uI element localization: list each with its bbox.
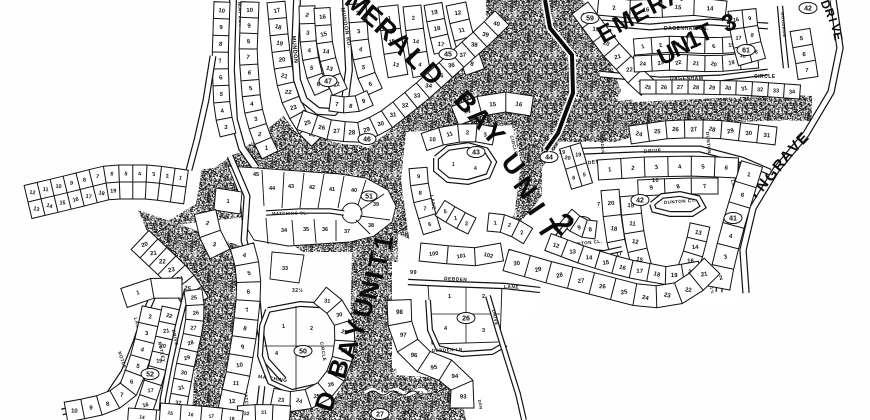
svg-text:7: 7 xyxy=(423,206,426,212)
svg-text:59: 59 xyxy=(586,15,594,22)
svg-text:1: 1 xyxy=(448,294,452,300)
svg-text:42: 42 xyxy=(636,197,644,204)
svg-text:19: 19 xyxy=(575,152,581,158)
svg-text:27: 27 xyxy=(376,411,384,418)
svg-text:41: 41 xyxy=(329,187,335,193)
svg-text:92: 92 xyxy=(424,412,431,418)
svg-text:20: 20 xyxy=(608,201,616,207)
svg-text:28: 28 xyxy=(693,85,700,92)
svg-text:1: 1 xyxy=(282,324,286,330)
svg-text:9: 9 xyxy=(417,174,420,180)
svg-text:46: 46 xyxy=(363,136,371,143)
svg-text:34: 34 xyxy=(281,228,288,234)
svg-text:MATCHING CL.: MATCHING CL. xyxy=(272,210,308,216)
svg-text:45: 45 xyxy=(253,172,259,178)
svg-text:26: 26 xyxy=(462,315,470,322)
svg-text:14: 14 xyxy=(707,6,714,12)
svg-text:25: 25 xyxy=(654,129,662,135)
svg-text:47: 47 xyxy=(324,78,332,85)
svg-text:17: 17 xyxy=(636,269,644,275)
svg-text:38: 38 xyxy=(471,42,479,48)
svg-text:19: 19 xyxy=(671,273,679,279)
svg-text:27: 27 xyxy=(578,278,586,284)
svg-text:4: 4 xyxy=(444,326,448,332)
svg-text:LANE: LANE xyxy=(504,284,520,291)
svg-text:19: 19 xyxy=(728,60,735,67)
svg-text:26: 26 xyxy=(328,382,335,389)
svg-text:5: 5 xyxy=(444,209,447,215)
svg-text:93: 93 xyxy=(460,394,467,400)
svg-text:2: 2 xyxy=(412,16,415,22)
svg-text:18: 18 xyxy=(229,416,235,420)
svg-text:12: 12 xyxy=(29,190,36,197)
svg-text:10: 10 xyxy=(429,137,437,143)
svg-text:26: 26 xyxy=(660,85,667,92)
svg-text:16: 16 xyxy=(319,14,327,21)
svg-text:26: 26 xyxy=(193,310,200,317)
svg-text:25: 25 xyxy=(191,296,197,302)
svg-text:23: 23 xyxy=(278,397,285,404)
svg-text:100: 100 xyxy=(429,251,439,258)
svg-text:CIRCLE: CIRCLE xyxy=(754,74,776,80)
svg-text:26: 26 xyxy=(672,127,680,134)
svg-text:27: 27 xyxy=(333,129,341,135)
svg-text:43: 43 xyxy=(472,149,480,156)
svg-text:41: 41 xyxy=(729,215,737,222)
svg-text:2: 2 xyxy=(482,294,486,300)
svg-text:20: 20 xyxy=(279,57,287,63)
svg-text:52: 52 xyxy=(146,371,154,378)
svg-text:37: 37 xyxy=(459,53,467,59)
svg-text:21: 21 xyxy=(261,410,267,417)
svg-text:33: 33 xyxy=(414,93,422,99)
svg-text:4: 4 xyxy=(474,166,477,172)
svg-text:14: 14 xyxy=(692,245,700,251)
svg-text:42: 42 xyxy=(804,5,812,12)
svg-text:15: 15 xyxy=(59,201,65,207)
svg-text:42: 42 xyxy=(309,185,315,191)
svg-text:DEBDEN: DEBDEN xyxy=(444,276,468,283)
svg-text:12: 12 xyxy=(229,399,237,406)
svg-text:22: 22 xyxy=(159,259,166,265)
svg-text:10: 10 xyxy=(246,8,254,14)
svg-text:33: 33 xyxy=(282,266,288,272)
svg-text:4: 4 xyxy=(275,351,279,357)
svg-text:30: 30 xyxy=(745,131,753,137)
svg-text:97: 97 xyxy=(400,333,408,339)
svg-text:39: 39 xyxy=(373,202,379,208)
svg-text:98: 98 xyxy=(396,310,403,316)
svg-text:10: 10 xyxy=(652,178,659,184)
svg-text:44: 44 xyxy=(269,186,276,192)
svg-text:22: 22 xyxy=(685,287,693,294)
svg-text:38: 38 xyxy=(368,223,374,229)
svg-text:5: 5 xyxy=(582,172,586,178)
svg-text:29: 29 xyxy=(708,85,715,92)
svg-text:1: 1 xyxy=(452,162,455,168)
svg-text:30: 30 xyxy=(180,370,187,377)
svg-text:50: 50 xyxy=(299,348,307,355)
svg-text:14: 14 xyxy=(139,414,146,420)
svg-text:31: 31 xyxy=(390,112,398,119)
svg-text:8: 8 xyxy=(418,190,422,196)
svg-text:11: 11 xyxy=(42,187,48,193)
svg-text:26: 26 xyxy=(599,284,607,290)
svg-text:22: 22 xyxy=(626,67,634,73)
svg-text:45: 45 xyxy=(444,51,452,58)
svg-text:20: 20 xyxy=(564,155,571,162)
svg-text:33: 33 xyxy=(773,88,779,94)
svg-text:22: 22 xyxy=(285,90,293,97)
svg-text:36: 36 xyxy=(322,227,328,233)
svg-text:43: 43 xyxy=(288,184,294,190)
svg-text:44: 44 xyxy=(545,154,553,161)
svg-text:17: 17 xyxy=(147,388,154,394)
svg-text:99: 99 xyxy=(410,270,417,276)
svg-text:10: 10 xyxy=(55,184,61,190)
svg-text:28: 28 xyxy=(349,131,356,137)
svg-text:17: 17 xyxy=(735,36,741,42)
svg-text:10: 10 xyxy=(71,408,79,414)
svg-text:94: 94 xyxy=(451,374,459,380)
svg-text:1½: 1½ xyxy=(709,286,716,294)
svg-text:19: 19 xyxy=(110,188,116,194)
svg-text:31: 31 xyxy=(763,133,771,139)
svg-text:14: 14 xyxy=(585,255,593,261)
svg-text:7: 7 xyxy=(597,202,601,208)
svg-text:35: 35 xyxy=(303,227,309,233)
svg-text:17½: 17½ xyxy=(528,143,539,150)
svg-text:27: 27 xyxy=(677,85,684,91)
svg-text:96: 96 xyxy=(410,353,418,359)
svg-text:6: 6 xyxy=(572,176,575,182)
svg-text:21: 21 xyxy=(163,328,170,335)
svg-text:17: 17 xyxy=(85,194,92,201)
svg-text:13: 13 xyxy=(569,249,577,255)
svg-text:1: 1 xyxy=(226,199,229,205)
svg-text:51: 51 xyxy=(365,193,373,200)
svg-text:21: 21 xyxy=(404,410,411,416)
svg-text:21: 21 xyxy=(693,61,700,68)
svg-text:32½: 32½ xyxy=(292,287,303,294)
svg-text:31: 31 xyxy=(324,298,331,305)
svg-text:34: 34 xyxy=(789,89,796,95)
svg-text:3: 3 xyxy=(482,328,486,334)
svg-text:37: 37 xyxy=(344,229,350,235)
svg-text:DRIVE: DRIVE xyxy=(644,148,662,155)
svg-text:22: 22 xyxy=(244,411,250,417)
svg-text:40: 40 xyxy=(351,188,357,194)
svg-text:27: 27 xyxy=(190,326,196,332)
svg-text:32: 32 xyxy=(757,87,763,93)
svg-text:2: 2 xyxy=(465,221,469,227)
svg-text:19: 19 xyxy=(559,150,566,156)
svg-text:2: 2 xyxy=(310,326,314,332)
svg-text:1: 1 xyxy=(454,216,458,222)
svg-text:61: 61 xyxy=(742,47,750,54)
